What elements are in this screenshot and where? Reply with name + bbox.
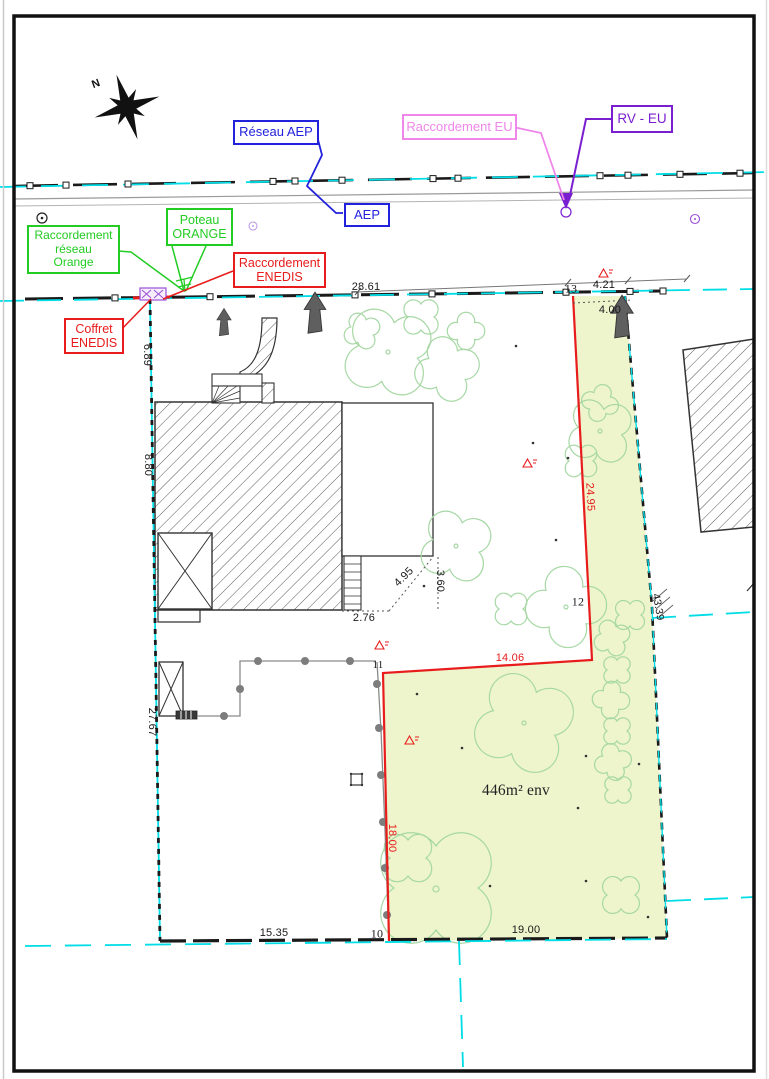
callout-aep: AEP	[344, 203, 390, 227]
callout-label: ENEDIS	[71, 336, 118, 350]
dim-house-offset-south: 2.76	[353, 612, 375, 624]
dim-west-mid: 8.80	[142, 454, 154, 476]
garage-building	[158, 533, 212, 622]
callout-label: Poteau	[180, 213, 220, 227]
callout-rv-eu: RV - EU	[611, 105, 673, 133]
eu-leader	[513, 127, 564, 200]
coffret-symbol-icon	[140, 288, 166, 300]
interior-fence	[197, 657, 391, 941]
new-parcel-fill	[383, 296, 667, 941]
dim-west-inner: 18.00	[386, 824, 398, 853]
site-plan: Réseau AEP AEP Raccordement EU RV - EU P…	[0, 0, 769, 1079]
callout-raccordement-enedis: Raccordement ENEDIS	[233, 252, 326, 288]
callout-label: Raccordement	[34, 229, 112, 242]
callout-raccordement-eu: Raccordement EU	[402, 114, 517, 140]
access-arrows	[217, 292, 633, 338]
dim-house-offset-east: 3.60	[434, 570, 446, 592]
dim-south-right: 19.00	[512, 924, 541, 936]
enedis-leaders	[117, 271, 233, 334]
rv-eu-leader	[569, 119, 612, 200]
callout-raccordement-orange: Raccordement réseau Orange	[27, 225, 120, 274]
callout-label: RV - EU	[617, 111, 666, 126]
callout-label: AEP	[354, 208, 380, 223]
point-11: 11	[373, 659, 384, 671]
parcel-area-label: 446m² env	[482, 782, 550, 800]
eu-circle-icon	[691, 215, 700, 224]
neighbor-building	[683, 339, 754, 532]
dim-east-upper: 24.95	[583, 482, 596, 511]
callout-reseau-aep: Réseau AEP	[233, 120, 319, 145]
callout-label: Réseau AEP	[239, 125, 313, 140]
callout-label: ENEDIS	[256, 270, 303, 284]
callout-coffret-enedis: Coffret ENEDIS	[64, 318, 124, 354]
point-10: 10	[371, 927, 383, 942]
callout-label: ORANGE	[172, 227, 226, 241]
callout-label: Raccordement EU	[406, 120, 512, 135]
eu-circle-icon	[249, 222, 257, 230]
shed-building	[159, 662, 197, 719]
dim-west-lower: 27.67	[146, 708, 158, 737]
dim-south-left: 15.35	[260, 927, 289, 939]
manhole-circle-icon	[37, 213, 47, 223]
callout-label: Coffret	[75, 322, 112, 336]
callout-label: réseau	[55, 243, 92, 256]
dim-north-inner: 14.06	[496, 652, 525, 664]
dim-front-seg: 4.21	[593, 279, 615, 291]
orange-leaders	[118, 246, 206, 291]
plan-linework	[0, 0, 769, 1079]
rv-eu-target-icon	[559, 193, 573, 217]
point-13: 13	[565, 282, 577, 297]
south-boundary	[25, 938, 667, 946]
callout-label: Raccordement	[239, 256, 320, 270]
callout-poteau-orange: Poteau ORANGE	[166, 208, 233, 246]
well-icon	[350, 773, 363, 786]
dim-frontage-total: 28.61	[352, 281, 381, 293]
road-fence	[0, 170, 769, 189]
dim-west-upper: 6.89	[141, 344, 153, 366]
callout-label: Orange	[53, 256, 93, 269]
point-12: 12	[572, 595, 584, 610]
dim-front-depth: 4.00	[599, 304, 621, 316]
